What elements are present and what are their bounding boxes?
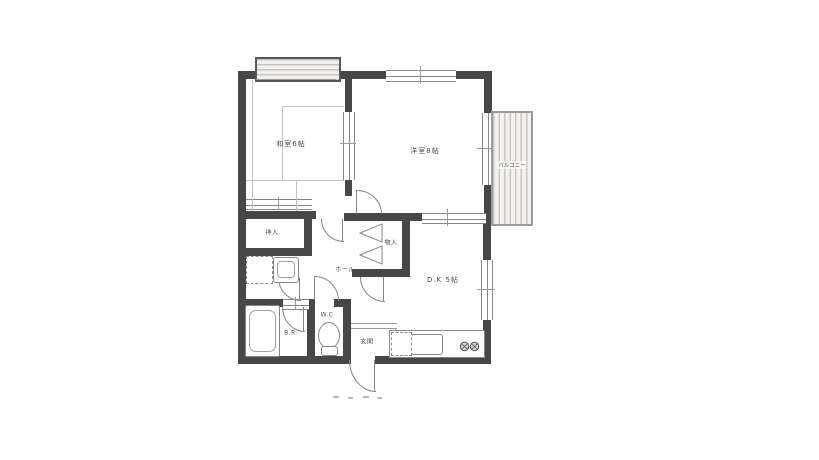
tick-window-top: [420, 66, 421, 84]
wall-wc-right: [343, 299, 351, 356]
scan-artifact: [363, 396, 369, 398]
scan-artifact: [377, 397, 382, 399]
wall-oshiire-bottom: [246, 248, 312, 256]
door-arc-entrance: [349, 360, 376, 392]
scan-artifact: [333, 396, 339, 398]
wall-monoire-bottom: [352, 269, 410, 277]
label-hall: ホール: [335, 265, 355, 274]
stove-burners-icon: [458, 339, 481, 354]
door-arc-bathroom: [282, 307, 305, 332]
wall-bottom-left: [238, 356, 351, 364]
wall-top-right-a: [346, 71, 390, 79]
door-leaf-youshitsu: [356, 190, 357, 214]
door-leaf-dk: [383, 277, 384, 301]
door-leaf-washroom: [299, 278, 300, 300]
label-br: B.R: [284, 330, 296, 337]
door-leaf-wc: [314, 276, 315, 300]
label-youshitsu: 洋室8帖: [410, 146, 439, 156]
label-monoire: 物入: [384, 238, 397, 247]
kitchen-sink: [411, 334, 443, 355]
door-arc-dk: [360, 277, 385, 302]
genkan-step-line: [351, 328, 397, 329]
tick-slider-dk: [447, 209, 448, 226]
toilet-base: [321, 346, 338, 356]
bathtub-inner: [249, 310, 276, 352]
label-genkan: 玄関: [360, 337, 373, 346]
slider-youshitsu-dk: [422, 213, 486, 224]
wall-partition-lower: [345, 178, 352, 196]
tatami-line: [296, 180, 297, 211]
slider-oshiire-fusuma: [246, 199, 312, 210]
genkan-step-line: [351, 323, 397, 324]
tatami-line: [282, 106, 344, 107]
label-washitsu: 和室6帖: [276, 139, 305, 149]
wall-right-upper-a: [484, 79, 492, 115]
door-leaf-washitsu: [342, 219, 343, 241]
door-arc-youshitsu: [357, 190, 382, 214]
door-leaf-bathroom: [303, 307, 304, 331]
tick-slider-washitsu: [340, 143, 356, 144]
slider-washitsu-youshitsu: [343, 112, 355, 180]
label-oshiire: 押入: [265, 228, 278, 237]
door-arc-washitsu: [321, 219, 344, 242]
balcony-label: バルコニー: [497, 161, 526, 169]
label-wc: W.C: [321, 312, 334, 319]
wall-partition-upper: [345, 79, 352, 115]
window-youshitsu-top: [386, 70, 456, 82]
tick-window-dk: [477, 289, 495, 290]
wall-monoire-right: [402, 213, 410, 277]
tick-fusuma: [278, 197, 279, 210]
bay-window-sill: [256, 79, 336, 80]
wall-right-lower-a: [483, 222, 491, 262]
wall-hall-top: [344, 213, 424, 221]
washing-machine-space: [246, 256, 273, 284]
washbasin-inner: [277, 261, 295, 278]
refrigerator-space: [391, 332, 412, 356]
wall-top-right-b: [452, 71, 492, 79]
toilet-bowl: [318, 322, 340, 349]
tatami-line: [246, 180, 344, 181]
window-dk-right: [481, 260, 493, 320]
balcony: バルコニー: [491, 111, 533, 226]
label-dk: D.K 5帖: [427, 275, 459, 285]
tatami-line: [252, 80, 253, 211]
bifold-door-icon: [357, 223, 383, 265]
door-arc-wc: [315, 276, 339, 301]
floor-plan: バルコニー: [0, 0, 819, 460]
door-leaf-entrance: [374, 360, 375, 391]
scan-artifact: [348, 397, 353, 399]
